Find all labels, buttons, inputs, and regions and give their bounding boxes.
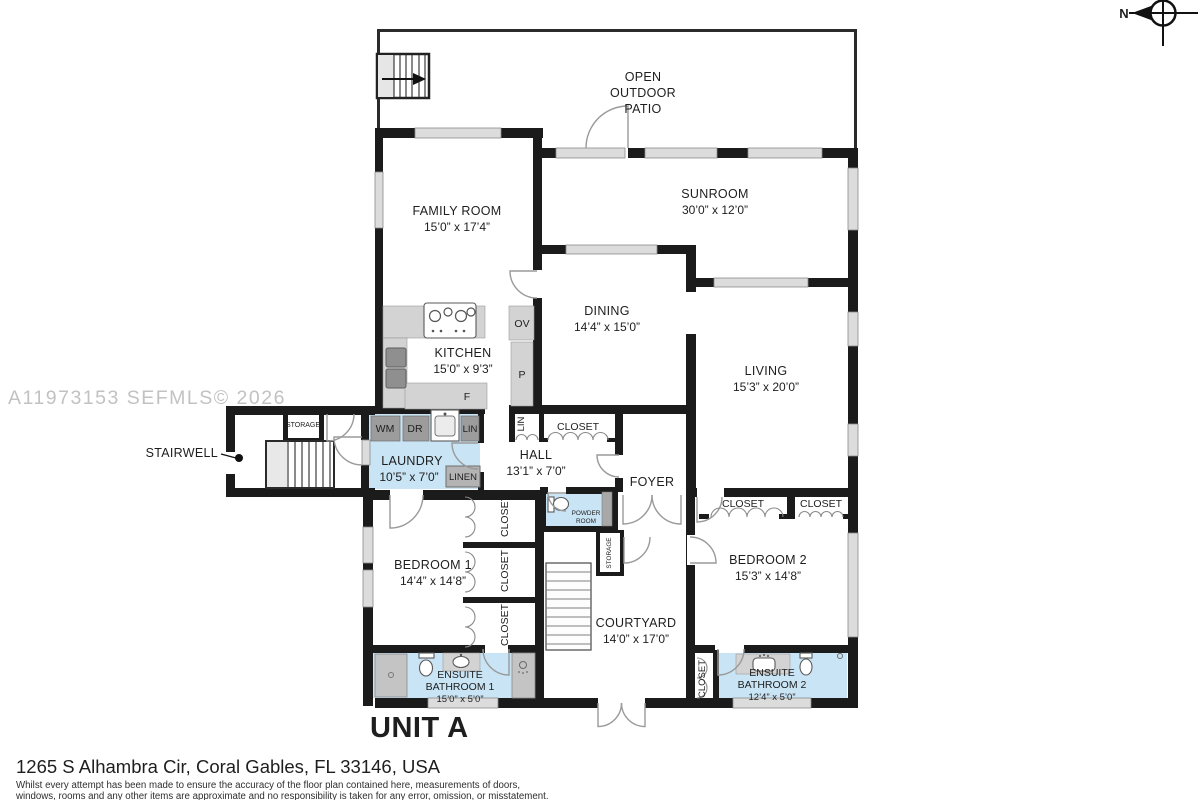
wall-oven-icon xyxy=(386,348,406,367)
pantry-label: P xyxy=(518,369,525,381)
stairwell-callout xyxy=(221,454,243,462)
laundry-sink-basin xyxy=(435,416,455,436)
door-arc xyxy=(510,271,537,298)
kitchen-counter xyxy=(405,383,487,409)
wall-segment xyxy=(686,488,695,708)
wall-segment xyxy=(843,514,849,519)
wall-segment xyxy=(423,490,542,500)
shower-spray-dot xyxy=(518,671,520,673)
room-dims-family: 15’0” x 17’4” xyxy=(424,220,490,234)
wall-segment xyxy=(509,405,515,442)
window xyxy=(415,128,501,138)
room-dims-living: 15’3” x 20’0” xyxy=(733,380,799,394)
floor-plan: N A11973153 SEFMLS© 2026 OPEN OUTDOOR PA… xyxy=(0,0,1200,800)
stair-landing xyxy=(378,55,394,97)
stairwell-stairs xyxy=(266,441,334,488)
wall-segment xyxy=(226,474,235,497)
toilet-bowl xyxy=(800,659,812,675)
wall-segment xyxy=(363,645,485,653)
room-label-foyer: FOYER xyxy=(630,475,675,489)
wall-segment xyxy=(463,542,535,548)
wall-segment xyxy=(686,408,696,496)
wall-segment xyxy=(539,438,548,442)
room-label-kitchen: KITCHEN xyxy=(435,346,492,360)
bifold-door xyxy=(799,512,843,518)
room-label-stairwell: STAIRWELL xyxy=(146,446,218,460)
footer: UNIT A 1265 S Alhambra Cir, Coral Gables… xyxy=(15,712,549,800)
room-dims-ensuite1: 15’0” x 5’0” xyxy=(437,694,484,705)
wall-segment xyxy=(363,490,390,500)
wall-segment xyxy=(375,698,428,708)
room-dims-courtyard: 14’0” x 17’0” xyxy=(603,632,669,646)
stair-landing xyxy=(267,442,287,487)
faucet-icon xyxy=(444,413,447,416)
compass-north-label: N xyxy=(1119,6,1128,21)
window xyxy=(848,424,858,456)
room-label-bedroom2: BEDROOM 2 xyxy=(729,553,807,567)
wall-segment xyxy=(686,645,715,653)
wall-segment xyxy=(535,650,544,708)
room-label-hall: HALL xyxy=(520,448,552,462)
storage-label: STORAGE xyxy=(606,537,613,568)
room-label-patio: OPEN xyxy=(625,70,662,84)
window xyxy=(748,148,822,158)
shower-spray-dot xyxy=(522,672,524,674)
address: 1265 S Alhambra Cir, Coral Gables, FL 33… xyxy=(16,756,441,777)
room-label-laundry: LAUNDRY xyxy=(381,454,443,468)
courtyard-stairs xyxy=(546,563,591,650)
wall-segment xyxy=(226,488,375,497)
sink-basin xyxy=(453,657,469,668)
patio-stairs xyxy=(377,54,429,98)
storage-label: STORAGE xyxy=(286,422,320,429)
door-arc xyxy=(586,106,628,148)
window xyxy=(848,168,858,230)
washer-label: WM xyxy=(376,423,395,435)
room-label-ensuite2: ENSUITE xyxy=(749,667,795,679)
room-label-ensuite2: BATHROOM 2 xyxy=(738,679,807,691)
compass: N xyxy=(1119,0,1198,46)
compass-north-arrow xyxy=(1132,6,1151,20)
room-dims-ensuite2: 12’4” x 5’0” xyxy=(749,692,796,703)
wall-segment xyxy=(699,514,709,519)
wall-segment xyxy=(811,698,858,708)
wall-segment xyxy=(744,645,858,653)
walls xyxy=(226,128,858,708)
wall-segment xyxy=(686,334,696,408)
wall-segment xyxy=(686,245,696,292)
window xyxy=(714,278,808,287)
room-dims-hall: 13’1” x 7’0” xyxy=(506,464,565,478)
door-arc xyxy=(597,455,619,477)
wall-segment xyxy=(463,597,535,603)
room-dims-bedroom2: 15’3” x 14’8” xyxy=(735,569,801,583)
wall-segment xyxy=(596,572,624,576)
wall-segment xyxy=(787,488,795,515)
watermark: A11973153 SEFMLS© 2026 xyxy=(8,387,286,409)
closet-label: CLOSET xyxy=(499,603,511,646)
wall-segment xyxy=(615,405,623,455)
door-arc xyxy=(623,495,652,524)
room-label-ensuite1: ENSUITE xyxy=(437,669,483,681)
toilet-tank xyxy=(419,653,434,658)
room-label-powder: ROOM xyxy=(576,518,596,525)
lin-label: LIN xyxy=(516,416,527,431)
room-label-patio: PATIO xyxy=(624,102,661,116)
window xyxy=(566,245,657,254)
room-dims-kitchen: 15’0” x 9’3” xyxy=(433,362,492,376)
french-door-arc xyxy=(598,703,622,727)
window xyxy=(848,533,858,637)
window xyxy=(556,148,625,158)
bifold-door xyxy=(465,607,475,647)
wall-segment xyxy=(612,487,618,532)
wall-segment xyxy=(375,128,383,410)
wall-segment xyxy=(498,698,598,708)
window xyxy=(375,172,383,228)
wall-segment xyxy=(533,298,542,408)
room-label-patio: OUTDOOR xyxy=(610,86,676,100)
shower xyxy=(512,653,535,698)
french-door-arc xyxy=(622,703,646,727)
fridge-label: F xyxy=(464,391,470,403)
room-dims-laundry: 10’5” x 7’0” xyxy=(379,470,438,484)
window xyxy=(363,527,373,563)
wall-segment xyxy=(539,405,544,442)
door-gap xyxy=(687,535,695,565)
patio-wall-top xyxy=(377,29,857,32)
closet-label: CLOSET xyxy=(557,421,600,433)
room-dims-bedroom1: 14’4” x 14’8” xyxy=(400,574,466,588)
wall-segment xyxy=(535,490,544,652)
wall-oven-icon xyxy=(386,369,406,388)
floor-plan-page: N A11973153 SEFMLS© 2026 OPEN OUTDOOR PA… xyxy=(0,0,1200,800)
bifold-door xyxy=(548,433,608,441)
closet-label: CLOSET xyxy=(499,549,511,592)
window xyxy=(848,312,858,346)
closet-label: CLOSET xyxy=(800,498,843,510)
wall-segment xyxy=(596,530,624,533)
closet-label: CLOSET xyxy=(722,498,765,510)
door-gap xyxy=(697,487,723,498)
window xyxy=(363,570,373,607)
room-label-powder: POWDER xyxy=(572,510,601,517)
stair-outline xyxy=(546,563,591,650)
room-label-courtyard: COURTYARD xyxy=(596,616,677,630)
window xyxy=(645,148,717,158)
shower-spray-dot xyxy=(526,671,528,673)
shower xyxy=(375,654,407,697)
linen-label: LINEN xyxy=(449,472,477,483)
bifold-door xyxy=(516,435,538,441)
wall-segment xyxy=(361,406,369,440)
closet-label: CLOSET xyxy=(499,494,511,537)
room-label-family: FAMILY ROOM xyxy=(413,204,502,218)
oven-label: OV xyxy=(514,318,529,330)
callout-dot xyxy=(235,454,243,462)
disclaimer-line2: windows, rooms and any other items are a… xyxy=(15,791,549,800)
bifold-door xyxy=(465,497,475,537)
faucet-icon xyxy=(767,655,769,657)
faucet-icon xyxy=(759,655,761,657)
door-arc xyxy=(390,495,423,528)
room-label-dining: DINING xyxy=(584,304,630,318)
closet-label: CLOSET xyxy=(697,660,708,698)
room-label-living: LIVING xyxy=(745,364,788,378)
window xyxy=(362,440,370,465)
dryer-label: DR xyxy=(407,423,423,435)
patio-wall-right xyxy=(854,29,857,150)
room-dims-sunroom: 30’0” x 12’0” xyxy=(682,203,748,217)
wall-segment xyxy=(361,465,369,490)
powder-vanity xyxy=(602,492,612,526)
unit-title: UNIT A xyxy=(370,712,469,744)
door-arc xyxy=(334,437,362,465)
wall-segment xyxy=(226,406,235,452)
faucet-icon xyxy=(460,654,462,656)
disclaimer-line1: Whilst every attempt has been made to en… xyxy=(16,780,520,791)
room-label-bedroom1: BEDROOM 1 xyxy=(394,558,472,572)
callout-leader-line xyxy=(221,454,236,458)
room-label-ensuite1: BATHROOM 1 xyxy=(426,681,495,693)
wall-segment xyxy=(779,514,795,519)
door-arc xyxy=(624,537,650,563)
room-dims-dining: 14’4” x 15’0” xyxy=(574,320,640,334)
toilet-bowl xyxy=(420,660,433,676)
lin-label: LIN xyxy=(463,424,478,435)
faucet-icon xyxy=(763,654,765,656)
room-label-sunroom: SUNROOM xyxy=(681,187,748,201)
door-arc xyxy=(652,495,681,524)
toilet-tank xyxy=(800,653,812,658)
wall-segment xyxy=(596,530,600,576)
